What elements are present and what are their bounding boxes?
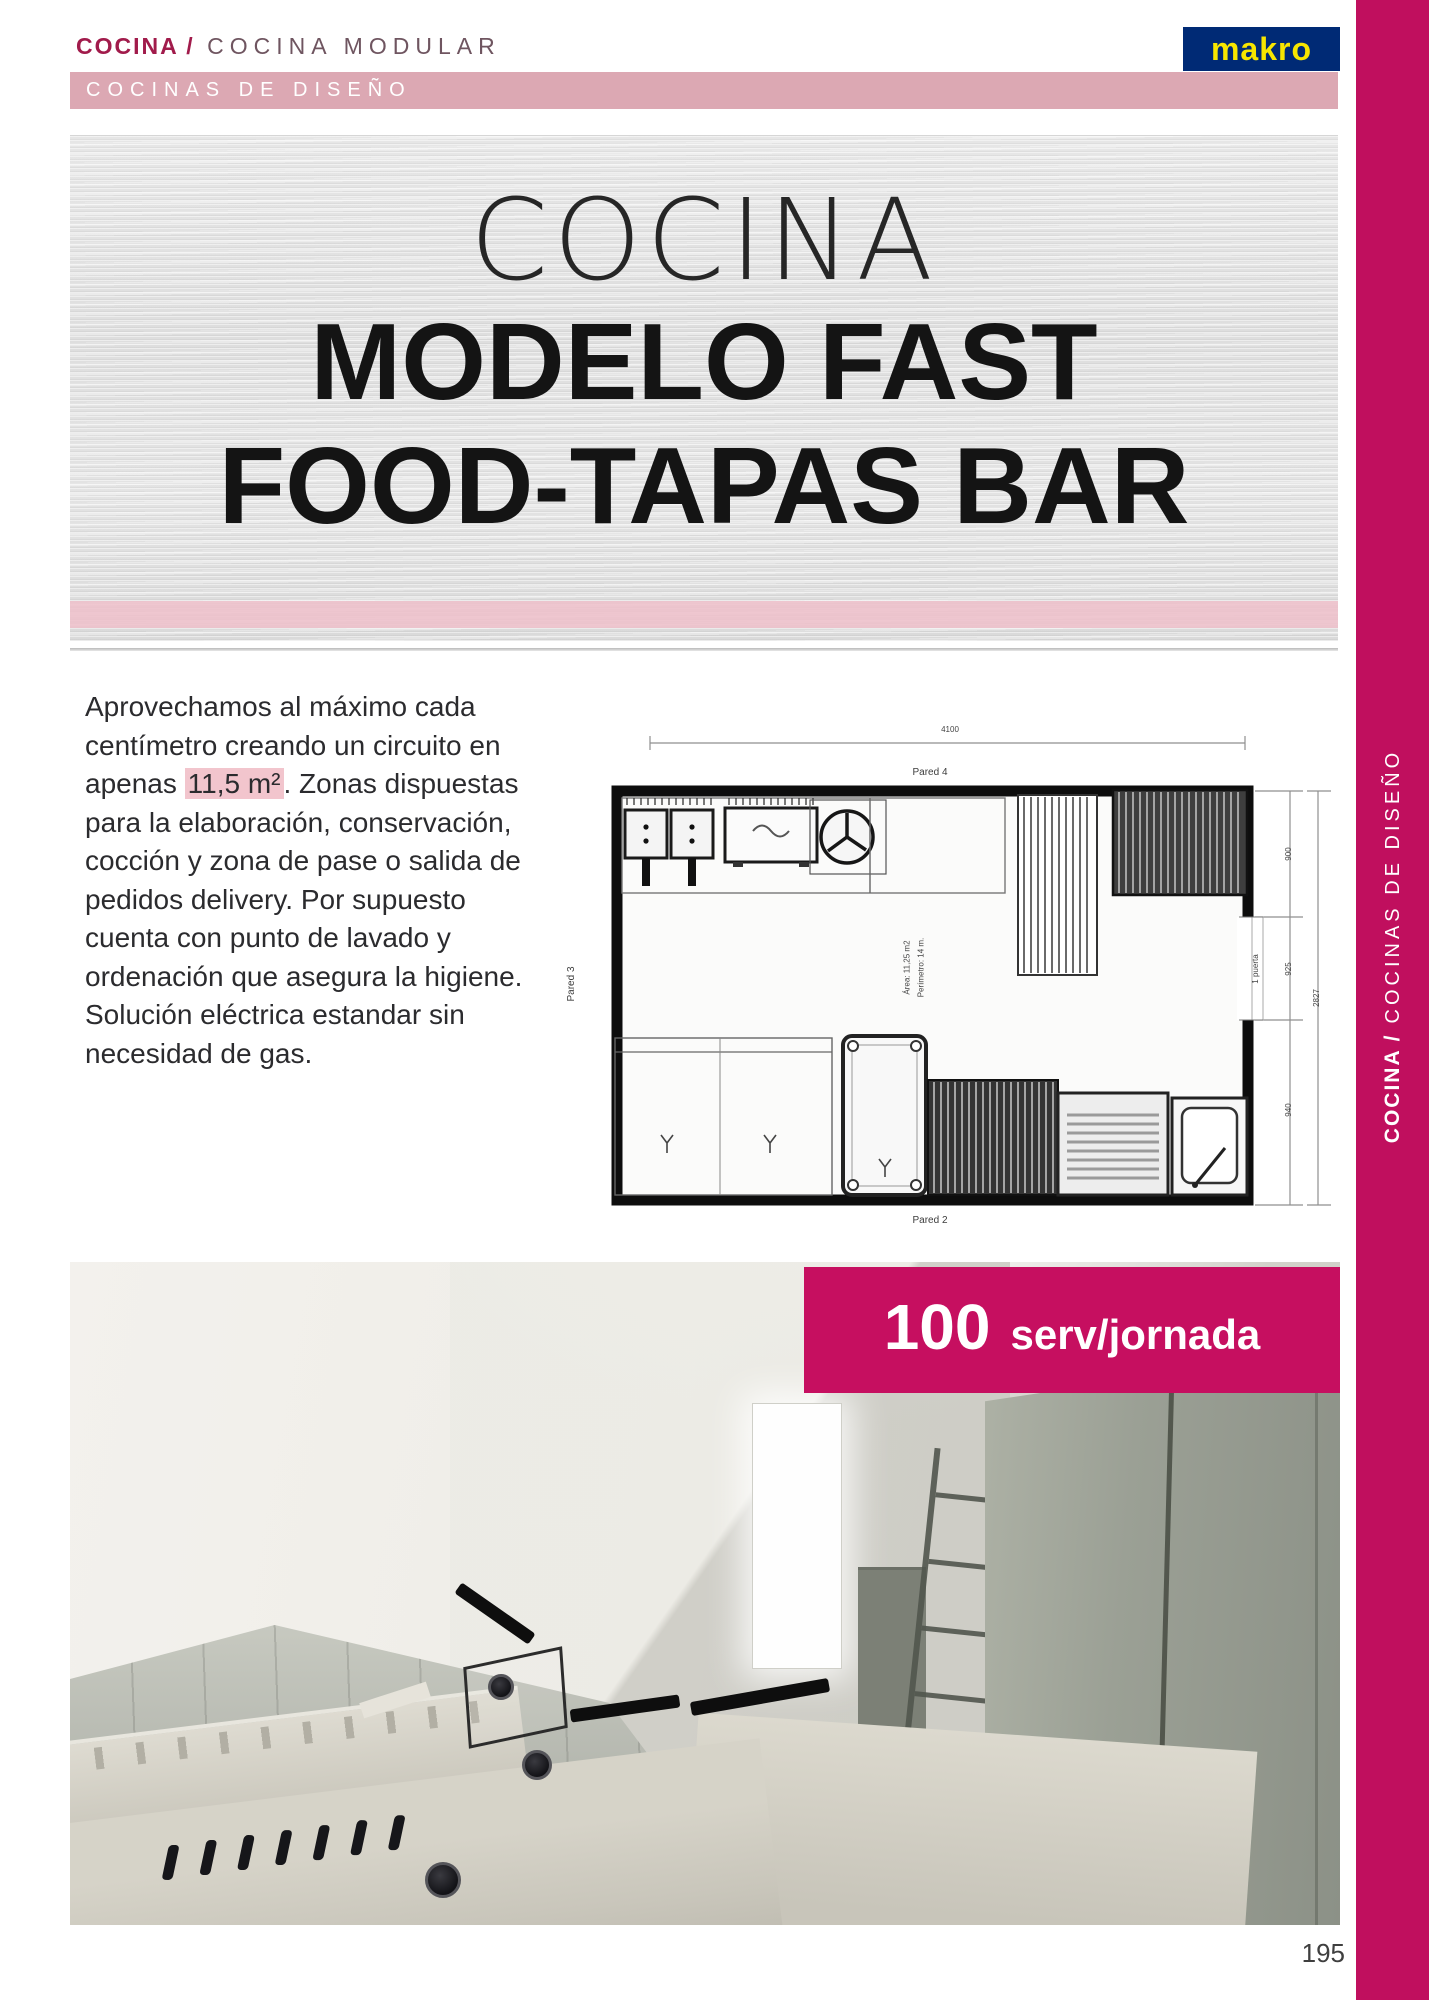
floorplan: 4100 Pared 4 Pared 2 Pared 3 1 puerta 90… (555, 645, 1355, 1245)
floorplan-dim-seg2: 925 (1284, 929, 1296, 1009)
title-line-2: MODELO FAST (70, 300, 1338, 424)
floorplan-wall-top-label: Pared 4 (855, 767, 1005, 778)
sidebar-label-light: COCINAS DE DISEÑO (1382, 749, 1405, 1024)
intro-paragraph: Aprovechamos al máximo cada centímetro c… (85, 688, 547, 1073)
sidebar-vertical-label: COCINA / COCINAS DE DISEÑO (1380, 736, 1406, 1156)
capacity-badge: 100 serv/jornada (804, 1267, 1340, 1393)
photo-wall-seam (1315, 1302, 1318, 1925)
griddle-icon (725, 808, 817, 867)
category-bar: COCINAS DE DISEÑO (70, 72, 1338, 109)
breadcrumb-subsection: COCINA MODULAR (207, 33, 501, 59)
floorplan-area-label: Área: 11,25 m2 (903, 913, 916, 1023)
floorplan-dim-seg1: 900 (1284, 814, 1296, 894)
floorplan-dim-total: 2827 (1312, 958, 1324, 1038)
intro-text-after: . Zonas dispuestas para la elaboración, … (85, 768, 522, 1069)
oven-unit-icon (1058, 1093, 1168, 1195)
floorplan-width-dim: 4100 (885, 725, 1015, 734)
island-unit-icon (843, 1036, 926, 1195)
floorplan-door-label: 1 puerta (1251, 929, 1263, 1009)
title-line-1: COCINA (70, 182, 1338, 300)
floorplan-dim-top-line (650, 736, 1245, 750)
shelving-rack-icon (1018, 795, 1097, 975)
badge-value: 100 (884, 1295, 991, 1359)
title-line-3: FOOD-TAPAS BAR (70, 424, 1338, 548)
sink-icon (1172, 1098, 1247, 1195)
intro-highlight: 11,5 m² (185, 768, 284, 799)
sidebar-label-bold: COCINA / (1381, 1033, 1405, 1143)
page-number: 195 (1245, 1938, 1345, 1969)
floorplan-perimeter-label: Perímetro: 14 m. (917, 913, 930, 1023)
grill-counter-icon (928, 1080, 1058, 1195)
photo-knob-dot (488, 1674, 514, 1700)
floorplan-drawing (555, 645, 1355, 1245)
breadcrumb: COCINA / COCINA MODULAR (76, 33, 501, 60)
banner-pink-strip (70, 601, 1338, 628)
breadcrumb-section: COCINA / (76, 33, 195, 59)
photo-door (752, 1403, 842, 1669)
shelving-rack-icon (1113, 790, 1247, 895)
makro-logo: makro (1183, 27, 1340, 71)
badge-unit: serv/jornada (1010, 1314, 1260, 1356)
floorplan-wall-bottom-label: Pared 2 (855, 1215, 1005, 1226)
photo-knob-dot (522, 1750, 552, 1780)
photo-knob-dot (425, 1862, 461, 1898)
title-banner: COCINA MODELO FAST FOOD-TAPAS BAR (70, 135, 1338, 641)
floorplan-dim-seg3: 940 (1284, 1070, 1296, 1150)
floorplan-wall-left-label: Pared 3 (566, 939, 580, 1029)
